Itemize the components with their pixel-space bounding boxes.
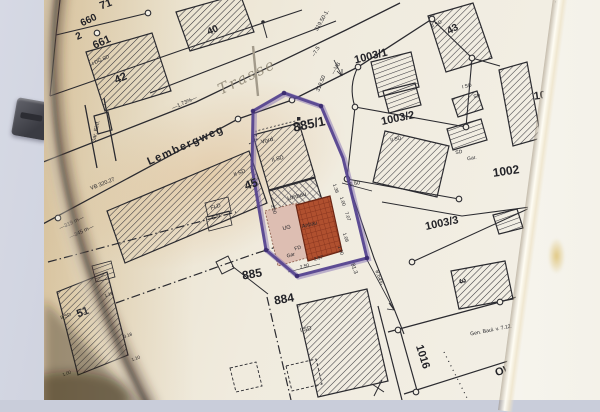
dim-1-38: 1.38 xyxy=(330,184,337,194)
parcel-label-660: 660 xyxy=(79,13,98,29)
paper-stain xyxy=(548,238,565,274)
dim-2-50-bottom: 2.50 xyxy=(300,264,310,271)
storey-label-i-dg-sd: I DG SD xyxy=(91,55,110,67)
parcel-label-660-denominator: 2 xyxy=(74,31,83,42)
dim-7-07: 7.07 xyxy=(342,212,349,222)
dim-6-50: 6.50 xyxy=(349,181,361,189)
pencil-label-trasse: Trasse xyxy=(216,57,279,98)
dim-3-18: 3.18 xyxy=(123,332,133,339)
distance-label-345m: —345 m— xyxy=(69,225,95,241)
dim-1-00-b: 1.00 xyxy=(335,246,342,256)
umbau-label: Umbau xyxy=(287,191,307,202)
level-label-320-27: VB 320.27 xyxy=(90,178,116,193)
fd-label: FD xyxy=(294,246,302,253)
building-label-43: 43 xyxy=(446,23,461,37)
dim-1-08: 1.08 xyxy=(340,233,347,243)
anbau-label: Anbau xyxy=(302,221,319,230)
parcel-label-1016: 1016 xyxy=(413,344,431,371)
storey-label-ii-sd-45: II SD xyxy=(233,169,246,178)
parcel-label-885-1: 885/1 xyxy=(292,114,327,133)
garage-entrance-label: Gar. Einf. xyxy=(92,120,102,144)
parcel-label-1002: 1002 xyxy=(492,163,520,179)
garage-label-strip: Gar xyxy=(286,253,295,260)
fld-label: FLD xyxy=(210,204,222,212)
dim-81-3: 81.3 xyxy=(349,263,358,275)
storey-label-i-sd-884: I SD xyxy=(300,326,313,334)
storey-label-ii-sd-strip: II SD xyxy=(271,156,284,164)
level-label-7-5: –7.5 xyxy=(312,46,322,58)
photo-of-site-plan: 8.68.78.899.19.1.19.1.29.1.39.1.49.29.39… xyxy=(0,0,600,400)
building-label-51: 51 xyxy=(75,306,90,321)
parcel-label-884: 884 xyxy=(273,291,295,306)
storey-label-sd-1002a: SD xyxy=(473,94,481,100)
ug-label: UG xyxy=(282,225,291,232)
dim-1-00-c: 1.00 xyxy=(62,370,72,377)
parcel-label-1003-2: 1003/2 xyxy=(380,110,415,128)
dim-2-50-left: 2.50 xyxy=(268,205,275,215)
storey-label-ii-sd-51: II SD xyxy=(60,313,72,322)
building-label-40: 40 xyxy=(206,24,220,38)
grade-label: —1.73%— xyxy=(172,96,199,112)
parcel-label-885: 885 xyxy=(241,266,263,281)
street-label-lembergweg: Lembergweg xyxy=(146,124,226,168)
vord-label: Vord. xyxy=(260,136,275,145)
storey-label-i-sd-1002: I SD xyxy=(462,84,473,91)
parcel-label-1003-1: 1003/1 xyxy=(353,48,388,67)
building-label-42: 42 xyxy=(113,71,129,86)
map-label-layer: 716602661424043885/11003/11003/21003/310… xyxy=(0,0,600,400)
building-label-45: 45 xyxy=(243,176,260,192)
map-page: 716602661424043885/11003/11003/21003/310… xyxy=(0,0,600,400)
garage-label-1002: Gar. xyxy=(467,156,477,163)
parcel-label-661: 661 xyxy=(91,34,112,52)
level-label-319-50-1: 319.50-1. xyxy=(315,10,331,33)
dim-1-10: 1.10 xyxy=(131,355,141,362)
parcel-label-1003-3: 1003/3 xyxy=(424,215,459,233)
storey-label-ii-sd-1003-2: II SD xyxy=(390,136,402,143)
binder-clip-bar xyxy=(20,112,43,122)
vb-label: —VB xyxy=(331,62,342,76)
garage-label-45: Gar. xyxy=(211,214,223,222)
dim-1-00-a: 1.00 xyxy=(337,197,344,207)
dim-2-97: 2.97 xyxy=(314,256,324,263)
storey-label-sd-1002b: SD xyxy=(455,150,463,156)
storey-label-ii-sd-43: II SD xyxy=(431,20,443,30)
building-label-3: 3 xyxy=(457,278,467,285)
dim-1-18: 1.18 xyxy=(104,291,114,298)
parcel-label-71: 71 xyxy=(98,0,113,12)
level-label-319-50: 319.50 xyxy=(316,75,327,93)
dim-8-64: 8.64¾ xyxy=(373,270,383,286)
